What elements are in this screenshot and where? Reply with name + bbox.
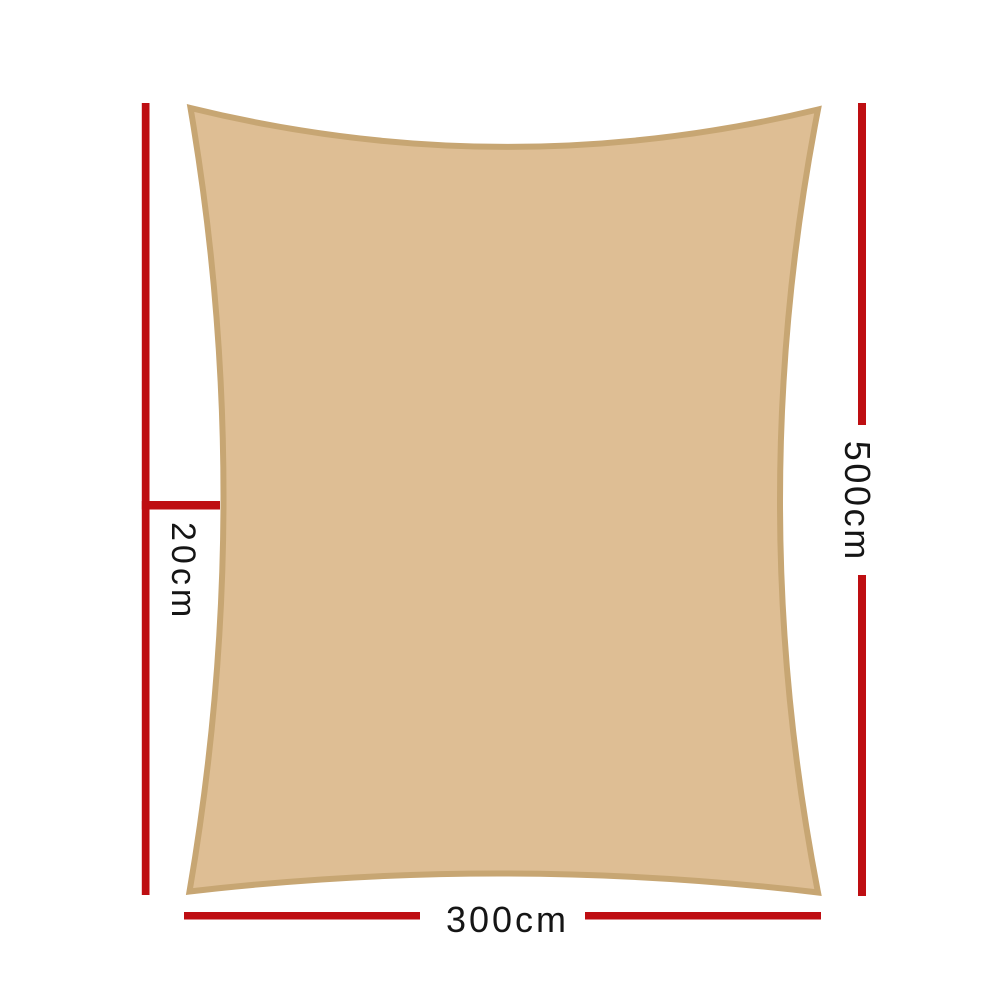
svg-text:20cm: 20cm: [164, 522, 202, 621]
svg-text:300cm: 300cm: [446, 899, 569, 940]
svg-text:500cm: 500cm: [837, 441, 878, 562]
